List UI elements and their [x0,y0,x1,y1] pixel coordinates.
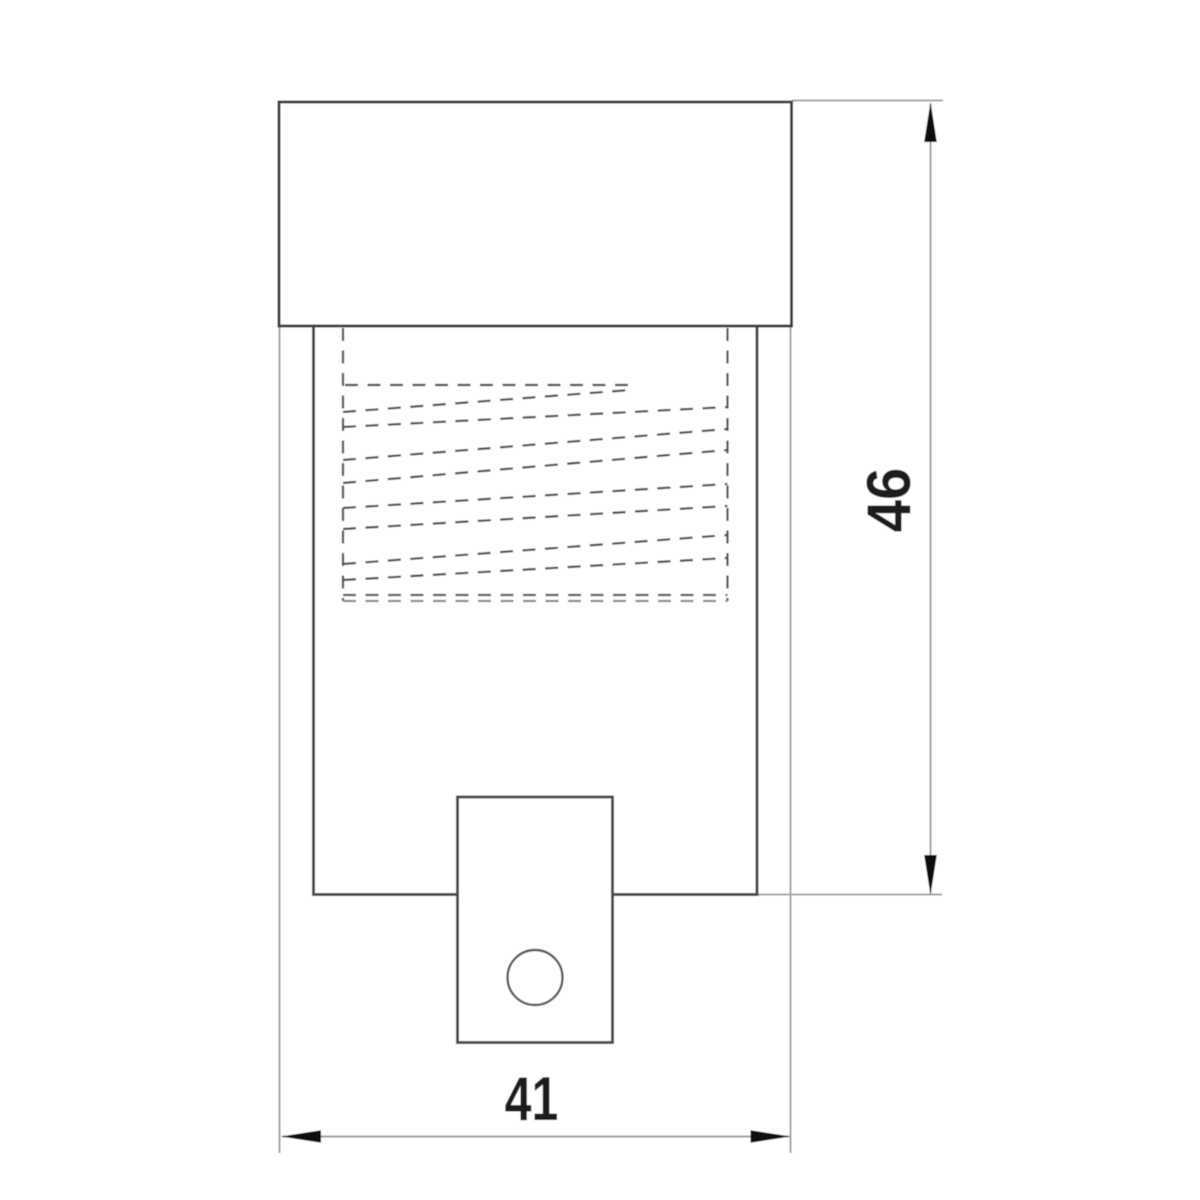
svg-text:46: 46 [854,468,923,533]
svg-text:41: 41 [505,1064,559,1133]
